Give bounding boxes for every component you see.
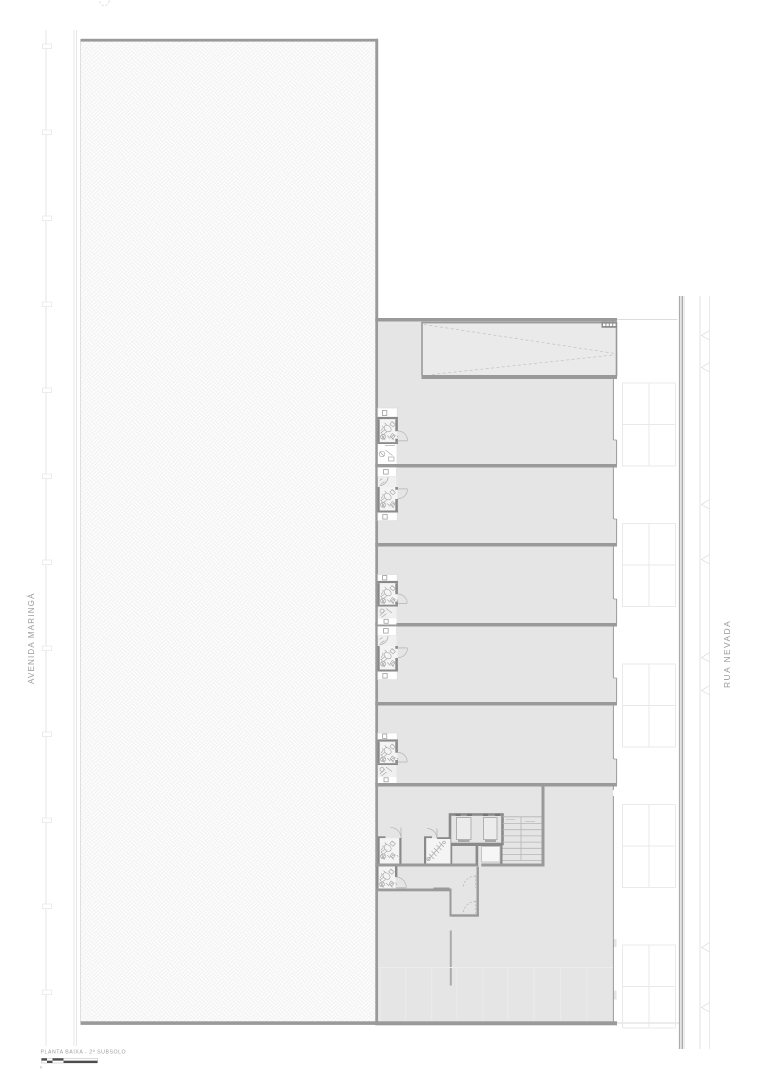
svg-text:RUA NEVADA: RUA NEVADA — [722, 620, 732, 688]
svg-text:AVENIDA MARINGÁ: AVENIDA MARINGÁ — [27, 592, 36, 684]
svg-text:0: 0 — [40, 1066, 42, 1070]
svg-text:PLANTA BAIXA - 2º SUBSOLO: PLANTA BAIXA - 2º SUBSOLO — [41, 1050, 127, 1056]
